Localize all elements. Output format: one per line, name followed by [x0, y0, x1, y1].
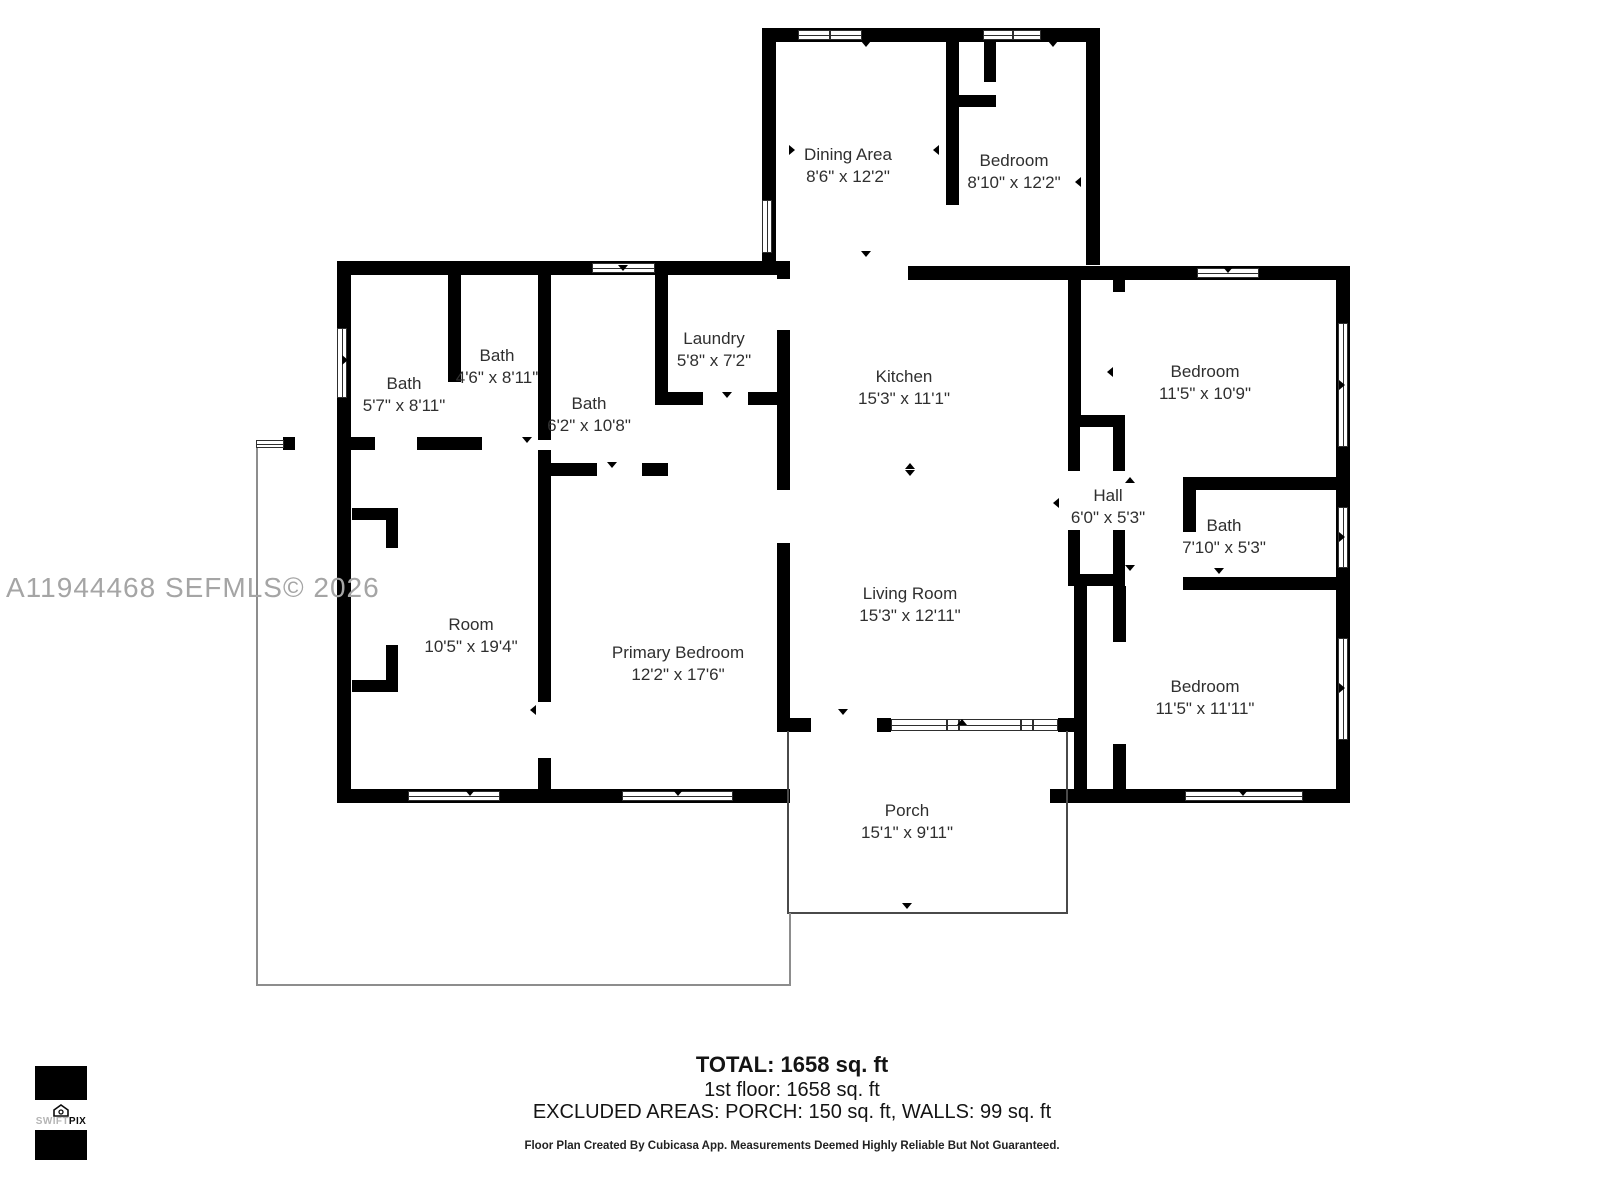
- logo-brand: SWIFTPIX: [36, 1117, 86, 1127]
- room-name: Kitchen: [858, 366, 950, 388]
- window-mullion: [946, 720, 948, 730]
- wall: [352, 508, 398, 520]
- door-marker: [428, 437, 438, 443]
- wall: [642, 463, 668, 476]
- logo-bottom-block: [35, 1130, 87, 1160]
- door-marker: [933, 145, 939, 155]
- door-marker: [951, 177, 957, 187]
- room-dims: 6'0" x 5'3": [1071, 507, 1145, 529]
- room-name: Bedroom: [1159, 361, 1251, 383]
- room-dims: 8'6" x 12'2": [804, 166, 892, 188]
- room-label-laundry: Laundry5'8" x 7'2": [677, 328, 751, 373]
- room-dims: 15'3" x 12'11": [859, 605, 960, 627]
- room-name: Hall: [1071, 485, 1145, 507]
- mls-watermark: A11944468 SEFMLS© 2026: [6, 572, 380, 604]
- logo-top-block: [35, 1066, 87, 1100]
- room-name: Bath: [547, 393, 631, 415]
- wall: [748, 392, 790, 405]
- wall: [1074, 586, 1087, 803]
- room-name: Dining Area: [804, 144, 892, 166]
- door-marker: [1075, 177, 1081, 187]
- floor-area-label: 1st floor: 1658 sq. ft: [0, 1079, 1584, 1102]
- room-label-bedroom-top: Bedroom8'10" x 12'2": [967, 150, 1060, 195]
- wall: [1113, 586, 1126, 642]
- room-label-bath-2: Bath4'6" x 8'11": [456, 345, 539, 390]
- door-marker: [905, 470, 915, 476]
- wall: [655, 392, 703, 405]
- room-dims: 10'5" x 19'4": [424, 636, 517, 658]
- wall: [1068, 415, 1080, 471]
- door-marker: [1125, 565, 1135, 571]
- wall: [1183, 477, 1350, 490]
- wall: [984, 42, 996, 82]
- room-label-hall: Hall6'0" x 5'3": [1071, 485, 1145, 530]
- window-mullion: [1032, 720, 1034, 730]
- door-marker: [1125, 477, 1135, 483]
- window: [408, 791, 500, 801]
- excluded-areas-label: EXCLUDED AREAS: PORCH: 150 sq. ft, WALLS…: [0, 1101, 1584, 1124]
- room-dims: 15'3" x 11'1": [858, 388, 950, 410]
- room-dims: 15'1" x 9'11": [861, 822, 953, 844]
- floor-plan-page: A11944468 SEFMLS© 2026 Dining Area8'6" x…: [0, 0, 1600, 1200]
- room-label-bath-3: Bath6'2" x 10'8": [547, 393, 631, 438]
- room-dims: 4'6" x 8'11": [456, 367, 539, 389]
- room-name: Bath: [363, 373, 446, 395]
- room-dims: 12'2" x 17'6": [612, 664, 744, 686]
- door-marker: [902, 903, 912, 909]
- door-marker: [1048, 41, 1058, 47]
- door-marker: [1339, 683, 1345, 693]
- room-name: Bedroom: [1156, 676, 1255, 698]
- logo-band: SWIFTPIX: [35, 1100, 87, 1130]
- wall: [1086, 28, 1100, 265]
- brand-pix: PIX: [69, 1116, 86, 1127]
- porch-outline: [1066, 731, 1068, 913]
- room-dims: 6'2" x 10'8": [547, 415, 631, 437]
- door-marker: [1339, 380, 1345, 390]
- room-dims: 5'7" x 8'11": [363, 395, 446, 417]
- deck-outline: [256, 984, 791, 986]
- door-marker: [709, 265, 719, 271]
- wall: [1058, 718, 1074, 732]
- door-marker: [861, 251, 871, 257]
- window-mullion: [1020, 720, 1022, 730]
- door-marker: [530, 705, 536, 715]
- wall: [1183, 577, 1350, 590]
- room-name: Primary Bedroom: [612, 642, 744, 664]
- room-label-primary-bedroom: Primary Bedroom12'2" x 17'6": [612, 642, 744, 687]
- door-marker: [522, 437, 532, 443]
- wall: [777, 330, 790, 490]
- room-label-dining: Dining Area8'6" x 12'2": [804, 144, 892, 189]
- door-marker: [465, 790, 475, 796]
- room-name: Room: [424, 614, 517, 636]
- room-name: Bedroom: [967, 150, 1060, 172]
- door-marker: [1214, 568, 1224, 574]
- porch-outline: [787, 731, 789, 913]
- door-marker: [789, 145, 795, 155]
- room-label-porch: Porch15'1" x 9'11": [861, 800, 953, 845]
- brand-swift: SWIFT: [36, 1116, 69, 1127]
- door-marker: [957, 719, 967, 725]
- door-marker: [838, 709, 848, 715]
- window: [762, 200, 772, 253]
- wall: [655, 275, 668, 392]
- door-marker: [1238, 790, 1248, 796]
- room-dims: 8'10" x 12'2": [967, 172, 1060, 194]
- porch-outline: [787, 912, 1068, 914]
- door-marker: [342, 355, 348, 365]
- deck-outline: [256, 444, 258, 985]
- swiftpix-logo: SWIFTPIX: [35, 1066, 87, 1160]
- room-label-living-room: Living Room15'3" x 12'11": [859, 583, 960, 628]
- door-marker: [905, 463, 915, 469]
- room-dims: 11'5" x 10'9": [1159, 383, 1251, 405]
- window-mullion: [1012, 31, 1014, 39]
- window-mullion: [829, 31, 831, 39]
- room-name: Laundry: [677, 328, 751, 350]
- room-name: Porch: [861, 800, 953, 822]
- wall: [777, 543, 790, 728]
- wall: [538, 450, 551, 702]
- wall: [417, 437, 482, 450]
- door-marker: [1275, 479, 1285, 485]
- room-dims: 5'8" x 7'2": [677, 350, 751, 372]
- room-dims: 7'10" x 5'3": [1182, 537, 1266, 559]
- wall: [1068, 273, 1081, 415]
- wall: [1068, 530, 1080, 586]
- room-label-bedroom-right: Bedroom11'5" x 10'9": [1159, 361, 1251, 406]
- door-marker: [1053, 498, 1059, 508]
- room-label-room: Room10'5" x 19'4": [424, 614, 517, 659]
- room-name: Bath: [456, 345, 539, 367]
- door-marker: [492, 265, 502, 271]
- door-marker: [1223, 267, 1233, 273]
- wall: [283, 437, 295, 450]
- wall: [545, 463, 597, 476]
- wall: [1113, 530, 1125, 586]
- room-label-bedroom-bottom: Bedroom11'5" x 11'11": [1156, 676, 1255, 721]
- door-marker: [1339, 532, 1345, 542]
- wall: [877, 718, 891, 732]
- disclaimer: Floor Plan Created By Cubicasa App. Meas…: [0, 1140, 1584, 1152]
- room-dims: 11'5" x 11'11": [1156, 698, 1255, 720]
- door-marker: [673, 790, 683, 796]
- door-marker: [722, 392, 732, 398]
- door-marker: [607, 462, 617, 468]
- door-marker: [861, 41, 871, 47]
- total-area-label: TOTAL: 1658 sq. ft: [0, 1052, 1584, 1078]
- wall: [337, 261, 790, 275]
- wall: [386, 645, 398, 692]
- deck-outline: [789, 913, 791, 985]
- room-name: Bath: [1182, 515, 1266, 537]
- wall: [1113, 415, 1125, 471]
- door-marker: [618, 265, 628, 271]
- wall: [908, 266, 1350, 280]
- door-marker: [1107, 367, 1113, 377]
- room-label-kitchen: Kitchen15'3" x 11'1": [858, 366, 950, 411]
- window: [256, 440, 284, 448]
- room-label-bath-1: Bath5'7" x 8'11": [363, 373, 446, 418]
- room-label-bath-right: Bath7'10" x 5'3": [1182, 515, 1266, 560]
- room-name: Living Room: [859, 583, 960, 605]
